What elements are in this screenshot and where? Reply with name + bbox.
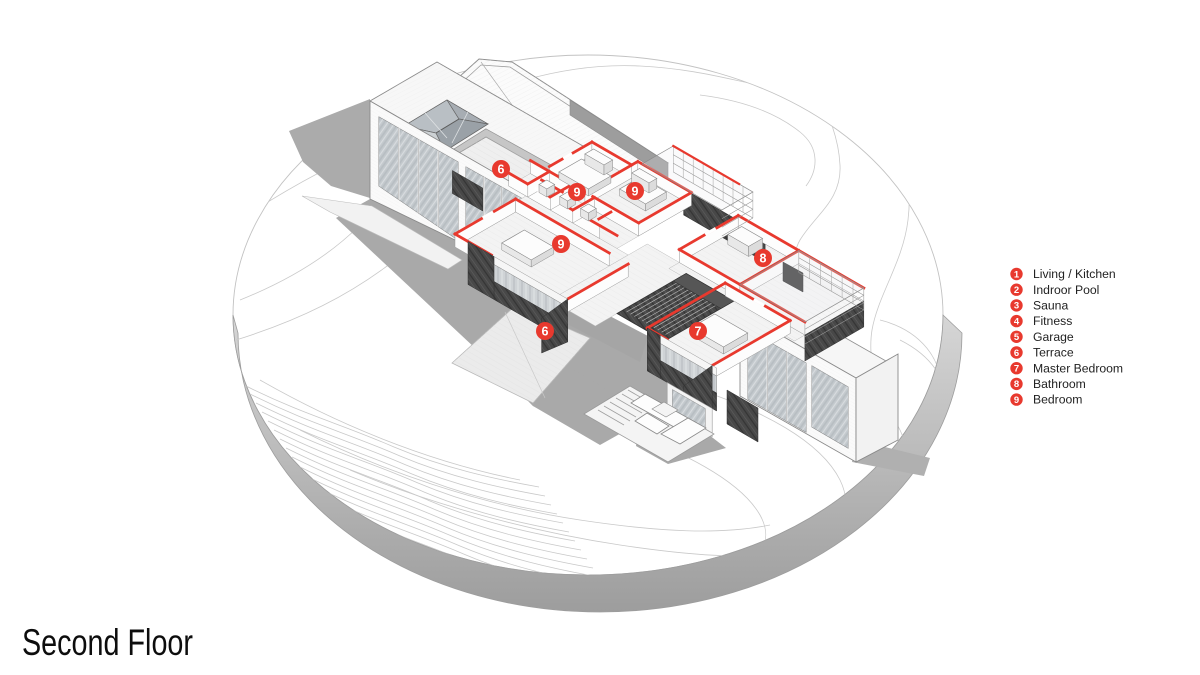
svg-text:9: 9 bbox=[558, 237, 565, 251]
svg-text:7: 7 bbox=[1014, 364, 1019, 375]
svg-text:6: 6 bbox=[498, 162, 505, 176]
svg-text:9: 9 bbox=[574, 185, 581, 199]
svg-text:7: 7 bbox=[695, 324, 702, 338]
svg-text:Garage: Garage bbox=[1033, 330, 1074, 344]
svg-text:9: 9 bbox=[1014, 395, 1019, 406]
svg-text:3: 3 bbox=[1014, 301, 1019, 312]
svg-text:9: 9 bbox=[632, 184, 639, 198]
svg-text:Living / Kitchen: Living / Kitchen bbox=[1033, 267, 1116, 281]
svg-text:Bedroom: Bedroom bbox=[1033, 393, 1082, 407]
svg-text:Indroor Pool: Indroor Pool bbox=[1033, 283, 1099, 297]
svg-text:4: 4 bbox=[1014, 316, 1020, 327]
svg-text:Second Floor: Second Floor bbox=[22, 622, 193, 663]
svg-text:8: 8 bbox=[1014, 379, 1019, 390]
svg-text:Master Bedroom: Master Bedroom bbox=[1033, 361, 1123, 375]
svg-text:8: 8 bbox=[760, 251, 767, 265]
svg-text:1: 1 bbox=[1014, 269, 1020, 280]
svg-text:6: 6 bbox=[1014, 348, 1019, 359]
svg-text:6: 6 bbox=[542, 324, 549, 338]
svg-text:5: 5 bbox=[1014, 332, 1020, 343]
svg-text:Bathroom: Bathroom bbox=[1033, 377, 1086, 391]
svg-text:2: 2 bbox=[1014, 285, 1019, 296]
svg-text:Sauna: Sauna bbox=[1033, 299, 1068, 313]
svg-text:Terrace: Terrace bbox=[1033, 346, 1074, 360]
svg-text:Fitness: Fitness bbox=[1033, 314, 1072, 328]
